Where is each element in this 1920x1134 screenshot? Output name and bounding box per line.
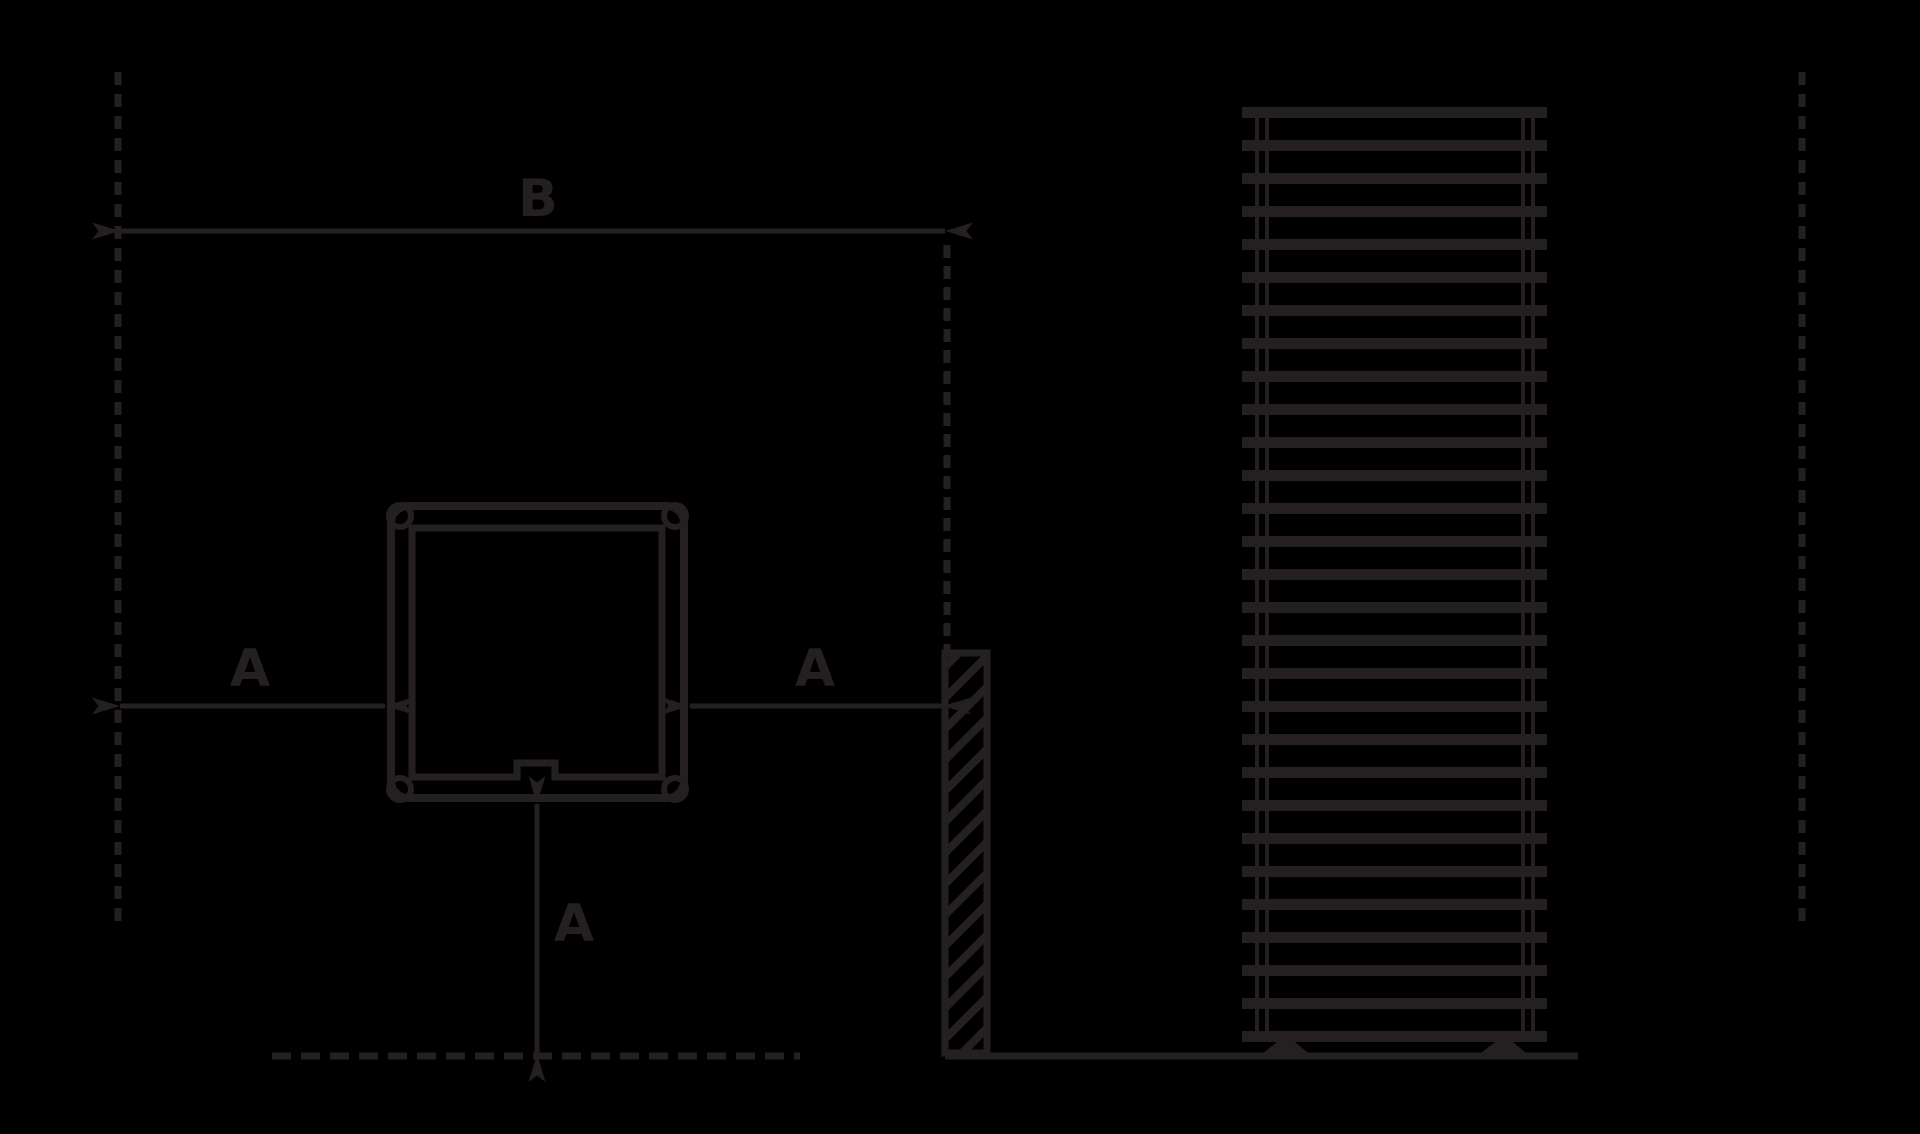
radiator-bar bbox=[1242, 338, 1547, 349]
radiator-bar bbox=[1242, 767, 1547, 778]
radiator-bar bbox=[1242, 140, 1547, 151]
radiator-bar bbox=[1242, 239, 1547, 250]
radiator-bar bbox=[1242, 569, 1547, 580]
radiator-bar bbox=[1242, 206, 1547, 217]
radiator-bar bbox=[1242, 503, 1547, 514]
radiator-bar bbox=[1242, 404, 1547, 415]
radiator-bar bbox=[1242, 965, 1547, 976]
radiator-bar bbox=[1242, 371, 1547, 382]
radiator-bar bbox=[1242, 668, 1547, 679]
radiator-bar bbox=[1242, 932, 1547, 943]
radiator-bar bbox=[1242, 899, 1547, 910]
dimension-b-label: B bbox=[518, 169, 558, 229]
radiator-bar bbox=[1242, 272, 1547, 283]
radiator-bars bbox=[1242, 107, 1547, 1042]
radiator-left-foot bbox=[1263, 1042, 1308, 1053]
radiator-bar bbox=[1242, 1031, 1547, 1042]
radiator-bar bbox=[1242, 998, 1547, 1009]
clearance-diagram: B A A A bbox=[0, 0, 1920, 1134]
radiator-bar bbox=[1242, 470, 1547, 481]
radiator-bar bbox=[1242, 701, 1547, 712]
radiator-bar bbox=[1242, 305, 1547, 316]
radiator-bar bbox=[1242, 734, 1547, 745]
radiator-bar bbox=[1242, 536, 1547, 547]
radiator-bar bbox=[1242, 173, 1547, 184]
radiator-bar bbox=[1242, 800, 1547, 811]
radiator-bar bbox=[1242, 437, 1547, 448]
appliance-outer-frame bbox=[391, 506, 684, 798]
dimension-a-left-label: A bbox=[230, 639, 270, 699]
radiator-bar bbox=[1242, 602, 1547, 613]
dimension-a-bottom-label: A bbox=[554, 894, 594, 954]
wall-section-hatch bbox=[945, 653, 987, 1053]
appliance-inner-frame-with-notch bbox=[412, 528, 662, 777]
radiator-bar bbox=[1242, 866, 1547, 877]
diagram-stage: B A A A bbox=[0, 0, 1920, 1134]
radiator-bar bbox=[1242, 635, 1547, 646]
radiator-bar bbox=[1242, 107, 1547, 118]
radiator bbox=[1242, 107, 1547, 1053]
radiator-right-foot bbox=[1481, 1042, 1526, 1053]
appliance-top-view bbox=[389, 505, 686, 800]
radiator-bar bbox=[1242, 833, 1547, 844]
dimension-a-right-label: A bbox=[795, 639, 835, 699]
